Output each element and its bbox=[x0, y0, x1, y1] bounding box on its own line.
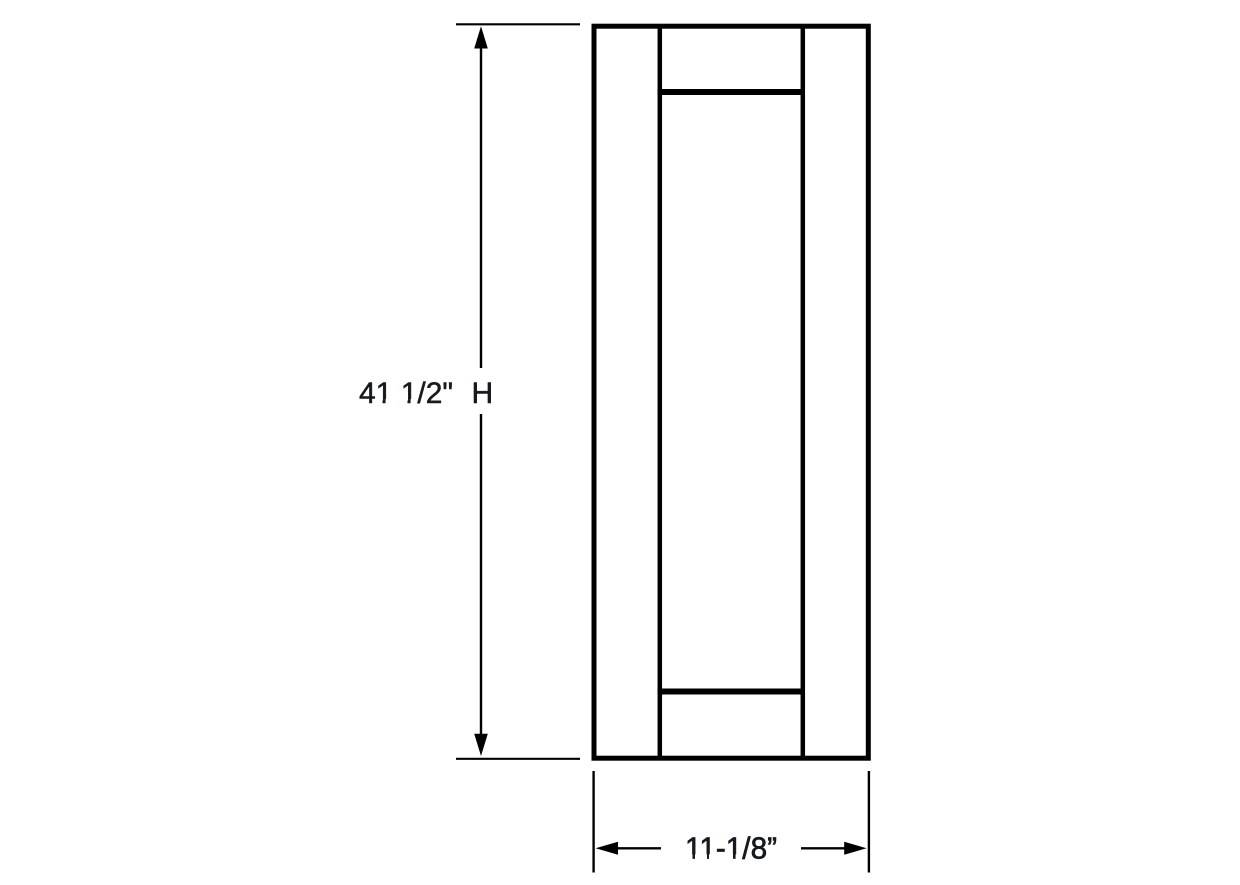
svg-text:H: H bbox=[472, 377, 494, 410]
svg-text:41 1/2": 41 1/2" bbox=[359, 377, 453, 410]
